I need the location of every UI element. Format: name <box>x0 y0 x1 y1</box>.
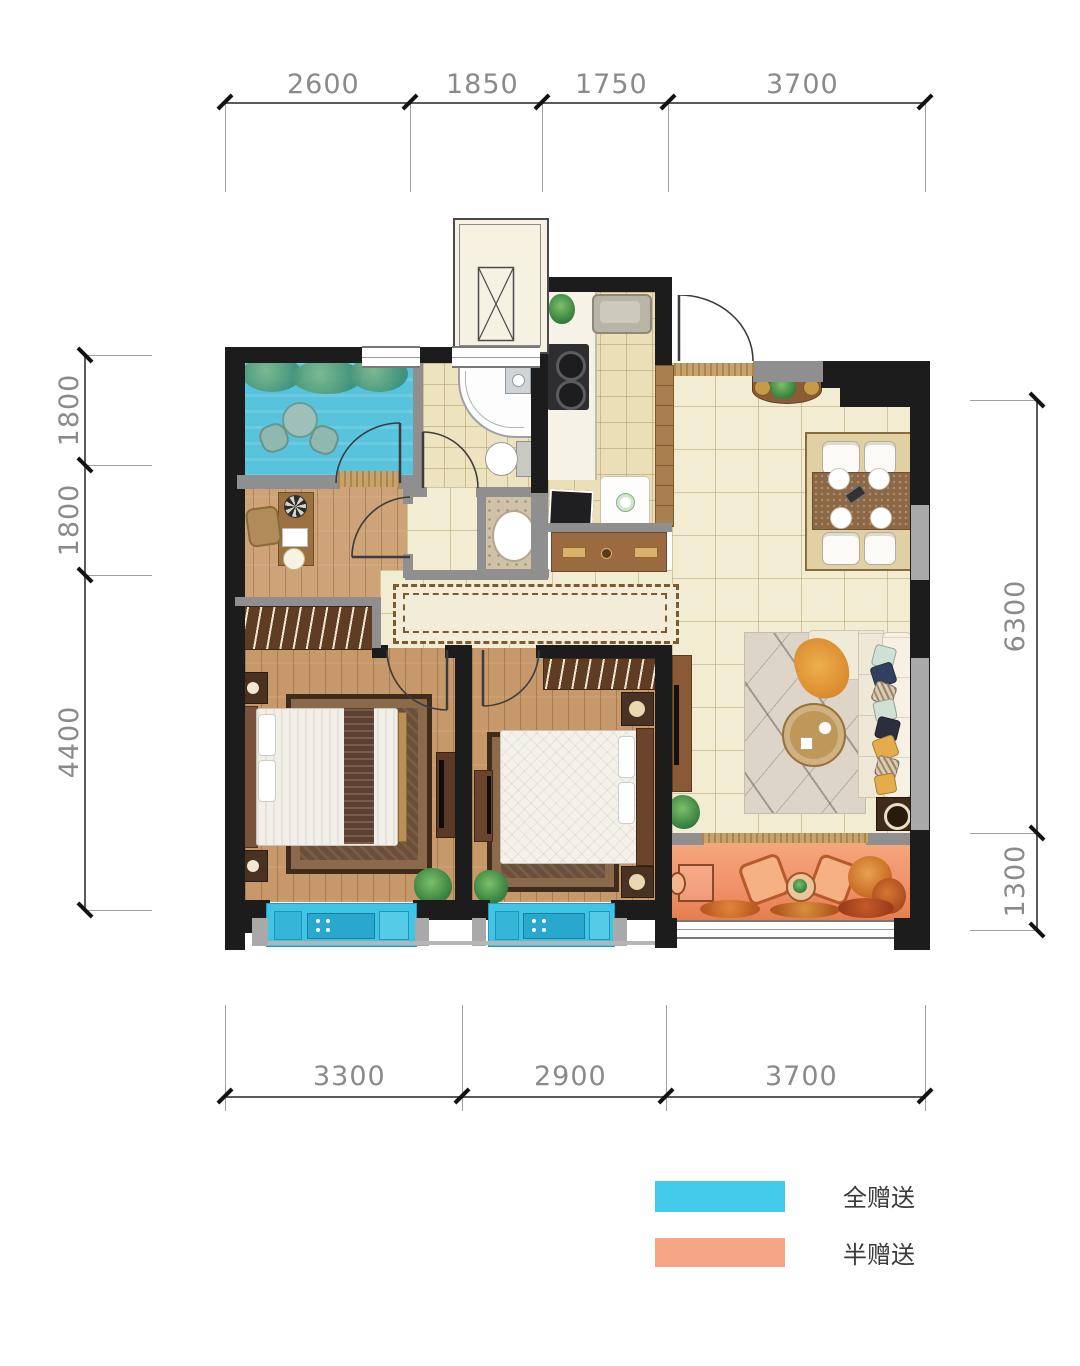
toilet-bowl <box>485 442 518 476</box>
dim-left-extension <box>86 910 152 911</box>
corridor-rug <box>393 584 679 644</box>
balcony-railing <box>677 920 894 939</box>
bedroom1-tv <box>439 760 444 828</box>
dim-top-extension <box>925 104 926 192</box>
desk-papers <box>282 528 308 547</box>
coffee-tray <box>800 737 813 750</box>
bay-dot <box>326 919 330 923</box>
kitchen-tall-cabinet <box>655 365 674 527</box>
wall <box>225 347 245 950</box>
bay-side-panel <box>589 911 610 940</box>
wall <box>655 918 677 948</box>
dim-label: 1800 <box>55 480 85 560</box>
partition-wall <box>477 493 486 578</box>
refrigerator <box>600 476 650 528</box>
entry-side-wall <box>753 361 823 382</box>
bathroom-window <box>452 346 540 368</box>
dim-label: 6300 <box>1001 576 1031 656</box>
dim-label: 1850 <box>446 70 506 100</box>
balcony-shrub <box>838 898 894 918</box>
bay-window-unit <box>523 913 585 939</box>
bed-pillow <box>618 736 635 778</box>
partition-wall <box>531 493 548 578</box>
dinner-plate <box>830 507 852 529</box>
dim-top-extension <box>225 104 226 192</box>
dim-left-extension <box>86 355 152 356</box>
living-plant <box>668 795 700 829</box>
bed-pillow <box>618 782 635 824</box>
entry-door <box>676 295 756 367</box>
dim-label: 1750 <box>575 70 635 100</box>
legend-swatch-half-gift <box>655 1238 785 1267</box>
legend-label-half-gift: 半赠送 <box>843 1240 915 1270</box>
partition-wall <box>372 597 381 648</box>
wall <box>894 918 930 950</box>
legend-swatch-full-gift <box>655 1181 785 1212</box>
nightstand-lamp <box>629 874 645 890</box>
table-plant <box>793 879 807 893</box>
console-knob <box>601 548 612 559</box>
wall <box>611 900 657 920</box>
hall-console <box>551 532 667 572</box>
wall <box>655 645 672 918</box>
corridor-rug-inner <box>403 593 667 633</box>
dim-bottom-line <box>225 1096 925 1098</box>
balcony-shrub <box>700 900 760 918</box>
bay-dot <box>542 928 546 932</box>
wall <box>455 645 472 910</box>
balcony-round-table <box>786 872 816 902</box>
balcony-window <box>362 346 420 368</box>
dim-right-extension <box>970 400 1036 401</box>
nightstand-lamp <box>629 701 645 717</box>
bedroom1-wardrobe <box>240 606 380 650</box>
bedroom2-wardrobe <box>543 658 659 690</box>
balcony-sliding-threshold <box>702 833 868 843</box>
fridge-logo <box>616 493 635 512</box>
right-wall-window-segment <box>911 505 929 580</box>
dining-table <box>812 472 911 530</box>
kitchen-sink <box>592 294 652 334</box>
sofa-pillow <box>873 772 897 795</box>
bed-runner <box>344 708 374 844</box>
bedroom2-door <box>481 648 541 710</box>
partition-wall <box>237 475 340 489</box>
bay-dot <box>542 919 546 923</box>
floor-plan-canvas: 2600 1850 1750 3700 3300 2900 3700 1800 … <box>0 0 1080 1366</box>
burner <box>556 351 586 381</box>
sofa-side-table <box>876 797 914 831</box>
shower-head <box>505 366 531 394</box>
desk-fan <box>284 495 307 518</box>
dim-top-extension <box>668 104 669 192</box>
bathroom-door <box>420 430 482 492</box>
legend-label-full-gift: 全赠送 <box>843 1183 915 1213</box>
dim-top-line <box>225 102 925 104</box>
tv-screen <box>674 685 679 765</box>
dim-label: 3700 <box>765 1062 825 1092</box>
dim-left-extension <box>86 465 152 466</box>
wall <box>531 277 672 292</box>
dim-right-extension <box>970 833 1036 834</box>
bay-side-panel <box>379 911 409 940</box>
bay-dot <box>326 928 330 932</box>
dim-left-extension <box>86 575 152 576</box>
dim-right-line <box>1036 400 1038 932</box>
dining-chair <box>864 532 896 565</box>
shower-head-dial <box>512 374 525 387</box>
bedroom1-door <box>385 648 451 714</box>
coffee-cup <box>818 721 832 735</box>
bay-window-unit <box>307 913 375 939</box>
burner <box>556 380 586 410</box>
sink-basin <box>600 301 640 323</box>
bay-dot <box>532 919 536 923</box>
bedroom1-mattress <box>256 708 398 846</box>
kitchen-plant <box>549 294 575 324</box>
gas-stove <box>547 344 589 410</box>
partition-wall <box>235 597 380 606</box>
dim-label: 3700 <box>766 70 826 100</box>
dim-label: 2900 <box>534 1062 594 1092</box>
study-door <box>350 495 414 561</box>
console-handle <box>562 547 586 558</box>
dinner-plate <box>868 468 890 490</box>
dining-chair <box>822 532 860 565</box>
dim-top-extension <box>542 104 543 192</box>
dim-label: 3300 <box>313 1062 373 1092</box>
bed-pillow <box>258 714 276 756</box>
bay-dot <box>316 919 320 923</box>
nightstand-lamp <box>247 860 259 872</box>
vanity-basin <box>492 510 536 562</box>
balcony-door-sill <box>672 833 704 845</box>
console-handle <box>634 547 658 558</box>
sill-line <box>268 941 655 945</box>
dim-label: 1800 <box>55 370 85 450</box>
balcony-door-sill <box>866 833 910 845</box>
nightstand-lamp <box>247 682 259 694</box>
partition-wall <box>548 523 672 532</box>
duct-x-symbol <box>477 266 515 342</box>
study-chair <box>244 505 282 548</box>
dinner-plate <box>870 507 892 529</box>
bedroom2-tv <box>487 776 491 834</box>
dim-top-extension <box>410 104 411 192</box>
bedroom2-plant <box>474 870 508 904</box>
bed-bench <box>398 712 407 842</box>
balcony-door <box>334 405 404 487</box>
bedroom2-bed-headboard <box>636 728 654 866</box>
wall <box>413 900 490 920</box>
nightstand <box>621 692 654 726</box>
side-table-bowl <box>884 803 911 830</box>
dim-label: 4400 <box>55 702 85 782</box>
bay-dot <box>316 928 320 932</box>
bedroom1-plant <box>414 868 452 904</box>
wall <box>225 347 362 363</box>
bed-pillow <box>258 760 276 802</box>
right-wall-window-segment <box>911 658 929 830</box>
window-sill <box>252 918 268 946</box>
dim-label: 2600 <box>287 70 347 100</box>
wall <box>536 645 672 658</box>
dinner-plate <box>828 468 850 490</box>
bay-side-panel <box>274 911 302 940</box>
wall <box>655 277 672 365</box>
bay-dot <box>532 928 536 932</box>
bay-side-panel <box>495 911 519 940</box>
coffee-table <box>782 703 846 767</box>
dim-label: 1300 <box>1001 841 1031 921</box>
desk-lamp <box>283 548 305 570</box>
dim-right-extension <box>970 930 1036 931</box>
balcony-shrub <box>770 902 840 918</box>
nightstand <box>621 866 654 898</box>
